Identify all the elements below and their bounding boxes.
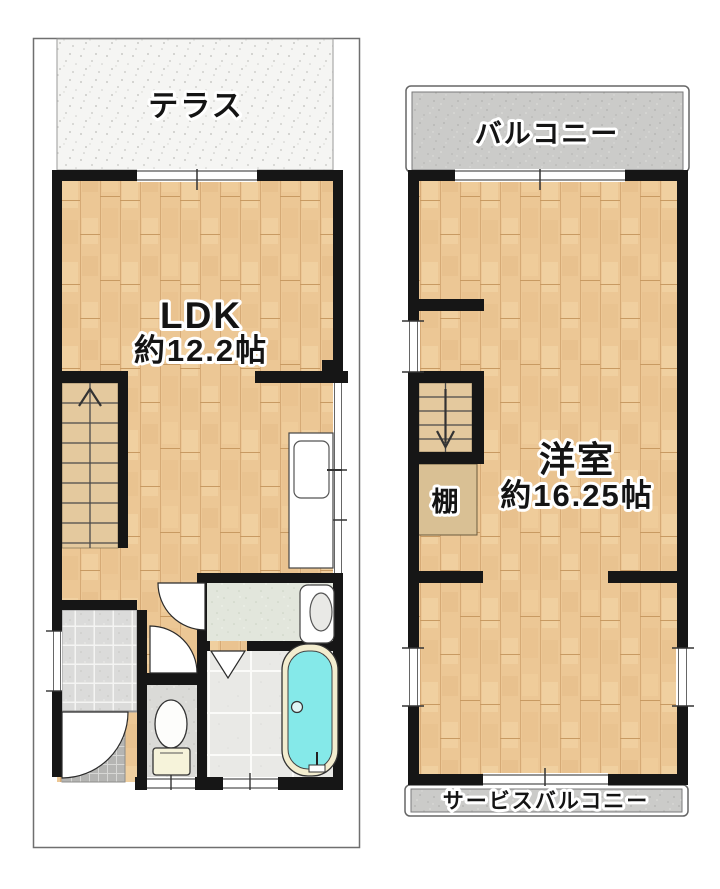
wall-hall-entrance [57,600,137,610]
wall2-stub-mid-right [608,571,688,583]
bathtub-drain [309,765,325,772]
wall2-stairs-right [472,371,484,464]
ldk-label: LDK [160,295,242,336]
shelf-label: 棚 [432,487,461,517]
ldk-size-label: 約12.2帖 [134,333,268,368]
western-room-label: 洋室 [539,439,615,480]
service-balcony-label: サービスバルコニー [443,790,650,813]
washbasin-unit [300,585,334,643]
wall-washroom-top [197,573,343,583]
balcony-label: バルコニー [475,119,619,149]
toilet-tank [153,748,190,775]
wall-entrance-toilet [137,610,147,790]
western-room-size-label: 約16.25帖 [500,478,654,513]
kitchen-sink [294,441,329,498]
wall-kitchen-jamb [322,360,333,372]
wall2-stub-upper [408,299,484,311]
wall-stairs-right [118,371,128,548]
wall-toilet-top [137,673,207,685]
toilet-bowl [155,700,187,748]
terrace-label: テラス [148,90,243,123]
wall-stairs-top [52,371,128,383]
wall-kitchen-stub [255,371,348,383]
wall-right-upper [333,170,343,383]
bathtub-faucet-icon [292,702,303,713]
wall-washroom-bath-left [197,641,210,651]
floor-plan-canvas: テラス LDK 約12.2帖 [0,0,720,889]
entrance-tile-floor [62,610,137,712]
wall2-stairs-bottom [408,452,484,464]
bathtub [282,644,338,776]
first-floor-plan: テラス LDK 約12.2帖 [34,39,360,848]
floor-plan-image: テラス LDK 約12.2帖 [0,0,720,889]
washbasin-bowl [310,593,332,631]
wall2-stub-mid-left [408,571,483,583]
second-floor-plan: バルコニー 洋室 約16.25帖 棚 サービスバルコニー [402,86,694,816]
toilet-fixture [153,700,190,775]
